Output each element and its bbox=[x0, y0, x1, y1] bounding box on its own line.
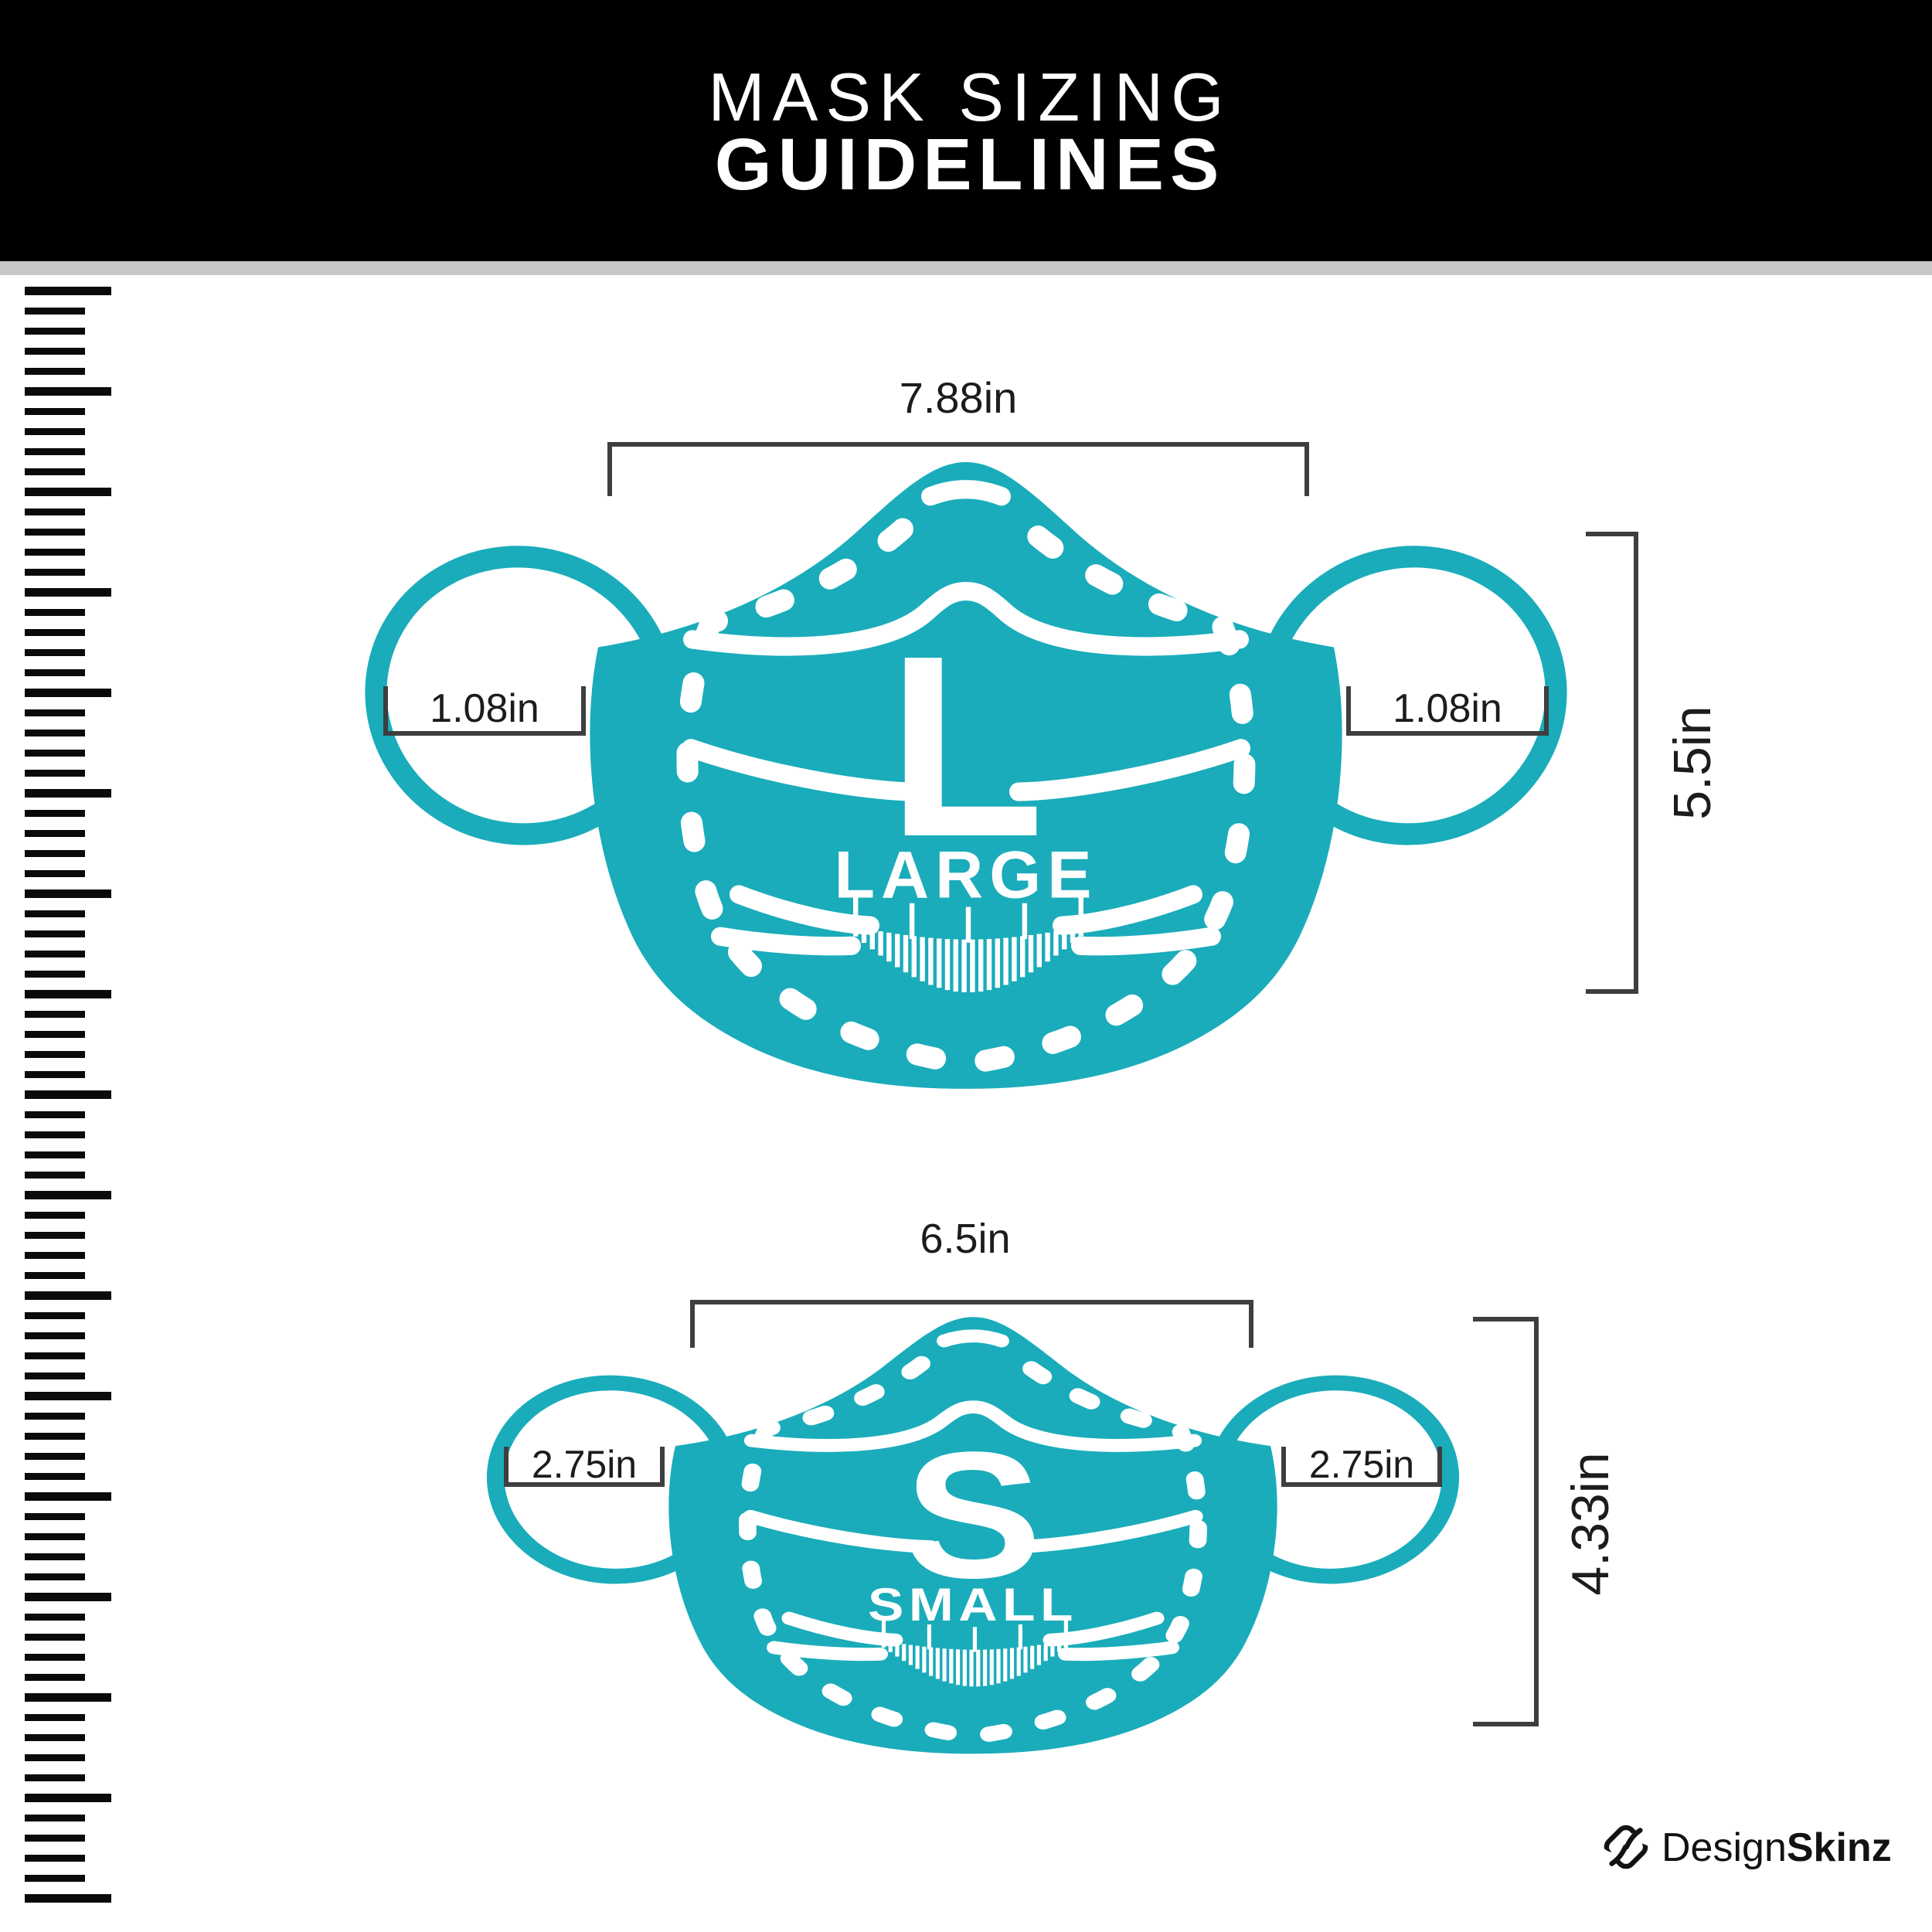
tape-fringe-bar bbox=[1012, 937, 1016, 981]
ruler-tick-major bbox=[25, 990, 111, 998]
brand-name-bold: Skinz bbox=[1787, 1825, 1892, 1870]
ruler-tick-major bbox=[25, 689, 111, 697]
ruler-tick-minor bbox=[25, 1634, 85, 1641]
ruler-tick-minor bbox=[25, 408, 85, 415]
tape-fringe-bar bbox=[886, 933, 891, 961]
tape-fringe-bar bbox=[936, 1648, 940, 1679]
ruler-tick-major bbox=[25, 588, 111, 597]
nose-stitch bbox=[930, 489, 1002, 496]
ruler-tick-minor bbox=[25, 1151, 85, 1158]
ruler-tick-minor bbox=[25, 730, 85, 736]
ruler-tick-minor bbox=[25, 1654, 85, 1661]
ruler-tick-minor bbox=[25, 428, 85, 435]
tape-fringe-bar bbox=[1045, 933, 1049, 961]
tape-fringe-bar bbox=[1023, 1647, 1027, 1673]
tape-fringe-bar bbox=[1010, 1648, 1014, 1679]
tape-fringe-bar bbox=[1029, 935, 1033, 972]
ruler-tick-minor bbox=[25, 1232, 85, 1239]
ruler-tick-minor bbox=[25, 569, 85, 576]
ruler-tick-minor bbox=[25, 348, 85, 355]
ruler-tick-major bbox=[25, 1291, 111, 1300]
nose-stitch bbox=[944, 1336, 1002, 1341]
tape-fringe-bar bbox=[976, 1650, 980, 1687]
tape-fringe-bar bbox=[1020, 936, 1025, 977]
tape-fringe-bar bbox=[1050, 1643, 1054, 1656]
ruler-tick-minor bbox=[25, 1614, 85, 1621]
large-mask-graphic: L LARGE bbox=[363, 457, 1569, 1103]
ruler-tick-minor bbox=[25, 1875, 85, 1882]
tape-fringe-bar bbox=[983, 1650, 987, 1686]
ruler-tick-minor bbox=[25, 1513, 85, 1520]
page-title-line2: GUIDELINES bbox=[0, 128, 1932, 202]
chin-line-left bbox=[774, 1648, 881, 1655]
tape-fringe-bar bbox=[922, 1647, 926, 1673]
small-mask-graphic: S SMALL bbox=[485, 1314, 1461, 1764]
ruler-tick-minor bbox=[25, 1332, 85, 1339]
tape-fringe-bar bbox=[949, 1649, 953, 1683]
ruler-tick-major bbox=[25, 1090, 111, 1099]
tape-fringe-bar bbox=[1044, 1644, 1048, 1661]
ruler-tick-minor bbox=[25, 1131, 85, 1138]
large-ear-right-label: 1.08in bbox=[1393, 685, 1502, 732]
tape-fringe-bar bbox=[978, 939, 983, 992]
ruler-tick-minor bbox=[25, 529, 85, 536]
ruler-tick-major bbox=[25, 387, 111, 396]
ruler-tick-minor bbox=[25, 448, 85, 455]
tape-fringe-bar bbox=[945, 939, 950, 990]
tape-fringe-bar bbox=[895, 1643, 899, 1656]
ruler-tick-major bbox=[25, 1794, 111, 1802]
ruler-tick-minor bbox=[25, 308, 85, 315]
tape-fringe-bar bbox=[1070, 929, 1075, 944]
size-name: LARGE bbox=[835, 838, 1098, 912]
tape-fringe-bar bbox=[889, 1642, 893, 1652]
ruler-tick-minor bbox=[25, 368, 85, 375]
ruler-tick-minor bbox=[25, 1071, 85, 1078]
ruler-tick-minor bbox=[25, 910, 85, 917]
tape-fringe-bar bbox=[862, 929, 866, 944]
small-width-label: 6.5in bbox=[811, 1215, 1120, 1263]
tape-fringe-bar bbox=[937, 938, 941, 988]
tape-fringe-bar bbox=[1057, 1642, 1061, 1652]
tape-fringe-bar bbox=[902, 1644, 906, 1661]
page-title-line1: MASK SIZING bbox=[0, 62, 1932, 133]
ruler-tick-minor bbox=[25, 1172, 85, 1179]
ruler-tick-minor bbox=[25, 1272, 85, 1279]
small-ear-right-bracket: 2.75in bbox=[1281, 1447, 1442, 1487]
tape-fringe-bar bbox=[987, 939, 992, 990]
ruler-tick-minor bbox=[25, 1734, 85, 1741]
chin-line-right bbox=[1080, 937, 1212, 947]
large-width-label: 7.88in bbox=[804, 372, 1113, 423]
tape-fringe-bar bbox=[1017, 1648, 1021, 1676]
tape-fringe-bar bbox=[956, 1649, 960, 1685]
ruler-tick-minor bbox=[25, 1011, 85, 1018]
ruler-tick-minor bbox=[25, 810, 85, 817]
ruler-tick-major bbox=[25, 1191, 111, 1199]
small-ear-left-label: 2.75in bbox=[532, 1442, 637, 1487]
ruler-tick-major bbox=[25, 488, 111, 496]
tape-fringe-bar bbox=[929, 1648, 933, 1676]
ruler-tick-minor bbox=[25, 609, 85, 616]
tape-fringe-bar bbox=[1003, 938, 1008, 985]
tape-fringe-bar bbox=[1037, 934, 1042, 967]
tape-fringe-bar bbox=[963, 1650, 967, 1686]
ruler-tick-major bbox=[25, 789, 111, 798]
tape-fringe-bar bbox=[970, 940, 975, 992]
ruler-tick-minor bbox=[25, 971, 85, 978]
ruler-tick-minor bbox=[25, 549, 85, 556]
ruler-tick-minor bbox=[25, 830, 85, 837]
ruler-tick-minor bbox=[25, 1352, 85, 1359]
ruler-tick-minor bbox=[25, 1453, 85, 1460]
tape-fringe-bar bbox=[909, 1645, 913, 1665]
ruler-tick-minor bbox=[25, 649, 85, 656]
ruler-tick-minor bbox=[25, 951, 85, 957]
ruler-tick-minor bbox=[25, 1051, 85, 1058]
designskinz-logo-text: DesignSkinz bbox=[1662, 1818, 1892, 1878]
ruler-tick-major bbox=[25, 889, 111, 898]
large-ear-right-bracket: 1.08in bbox=[1346, 686, 1549, 736]
tape-fringe-bar bbox=[878, 931, 883, 955]
large-height-bracket bbox=[1586, 532, 1638, 994]
ruler-tick-minor bbox=[25, 1252, 85, 1259]
large-ear-left-bracket: 1.08in bbox=[383, 686, 586, 736]
ruler-tick-minor bbox=[25, 328, 85, 335]
tape-fringe-bar bbox=[903, 935, 908, 972]
tape-fringe-bar bbox=[928, 938, 933, 985]
small-height-bracket bbox=[1473, 1317, 1539, 1726]
tape-fringe-bar bbox=[916, 1646, 920, 1669]
ruler-tick-minor bbox=[25, 1754, 85, 1761]
ruler-tick-minor bbox=[25, 1473, 85, 1480]
small-height-label: 4.33in bbox=[1544, 1385, 1637, 1663]
small-ear-right-label: 2.75in bbox=[1309, 1442, 1414, 1487]
infographic-root: MASK SIZING GUIDELINES 7.88in L LARGE 1.… bbox=[0, 0, 1932, 1932]
tape-fringe-bar bbox=[920, 937, 924, 981]
ruler-tick-minor bbox=[25, 1111, 85, 1118]
ruler-tick-minor bbox=[25, 1714, 85, 1721]
tape-fringe-bar bbox=[1053, 931, 1058, 955]
tape-fringe-bar bbox=[961, 940, 966, 992]
ruler-tick-major bbox=[25, 1492, 111, 1501]
ruler-tick-minor bbox=[25, 870, 85, 877]
ruler-tick-minor bbox=[25, 669, 85, 676]
ruler-tick-minor bbox=[25, 1533, 85, 1540]
ruler-tick-minor bbox=[25, 1312, 85, 1319]
ruler-tick-major bbox=[25, 1593, 111, 1601]
ruler-tick-minor bbox=[25, 1674, 85, 1681]
ruler-tick-minor bbox=[25, 709, 85, 716]
ruler-tick-minor bbox=[25, 750, 85, 757]
ruler-tick-minor bbox=[25, 850, 85, 857]
ruler-tick-minor bbox=[25, 1413, 85, 1420]
ruler-tick-minor bbox=[25, 1212, 85, 1219]
tape-fringe-bar bbox=[996, 1649, 1000, 1683]
tape-fringe-bar bbox=[995, 938, 1000, 988]
tape-fringe-bar bbox=[912, 936, 917, 977]
size-name: SMALL bbox=[868, 1578, 1078, 1631]
ruler-tick-minor bbox=[25, 468, 85, 475]
ruler-tick-minor bbox=[25, 1855, 85, 1862]
large-height-label: 5.5in bbox=[1646, 624, 1739, 902]
designskinz-logo-icon bbox=[1595, 1816, 1657, 1878]
ruler-tick-minor bbox=[25, 1372, 85, 1379]
tape-fringe-bar bbox=[954, 939, 958, 992]
ruler-tick-minor bbox=[25, 770, 85, 777]
ruler-tick-major bbox=[25, 1392, 111, 1400]
tape-fringe-bar bbox=[943, 1648, 947, 1681]
tape-fringe-bar bbox=[990, 1649, 994, 1685]
ruler-tick-minor bbox=[25, 1553, 85, 1560]
ruler-tick-minor bbox=[25, 1573, 85, 1580]
large-ear-left-label: 1.08in bbox=[430, 685, 539, 732]
ruler-tick-minor bbox=[25, 1835, 85, 1842]
tape-fringe-bar bbox=[1030, 1646, 1034, 1669]
tape-fringe-bar bbox=[969, 1650, 973, 1687]
tape-fringe-bar bbox=[895, 934, 900, 967]
ruler-tick-major bbox=[25, 287, 111, 295]
ruler-tick-minor bbox=[25, 1774, 85, 1781]
small-ear-left-bracket: 2.75in bbox=[504, 1447, 665, 1487]
ruler-tick-minor bbox=[25, 930, 85, 937]
chin-line-left bbox=[720, 937, 852, 947]
ruler-tick-minor bbox=[25, 1815, 85, 1821]
tape-major-tick bbox=[973, 1627, 977, 1651]
tape-fringe-bar bbox=[870, 930, 875, 949]
tape-fringe-bar bbox=[1003, 1648, 1007, 1681]
ruler-tick-minor bbox=[25, 1031, 85, 1038]
ruler-tick-minor bbox=[25, 629, 85, 636]
tape-fringe-bar bbox=[1062, 930, 1066, 949]
ruler bbox=[25, 0, 141, 1932]
header-divider-bar bbox=[0, 261, 1932, 275]
ruler-tick-minor bbox=[25, 1433, 85, 1440]
ruler-tick-major bbox=[25, 1693, 111, 1702]
chin-line-right bbox=[1066, 1648, 1172, 1655]
ruler-tick-major bbox=[25, 1894, 111, 1903]
ruler-tick-minor bbox=[25, 509, 85, 515]
brand-name-regular: Design bbox=[1662, 1825, 1787, 1870]
tape-fringe-bar bbox=[1037, 1645, 1041, 1665]
